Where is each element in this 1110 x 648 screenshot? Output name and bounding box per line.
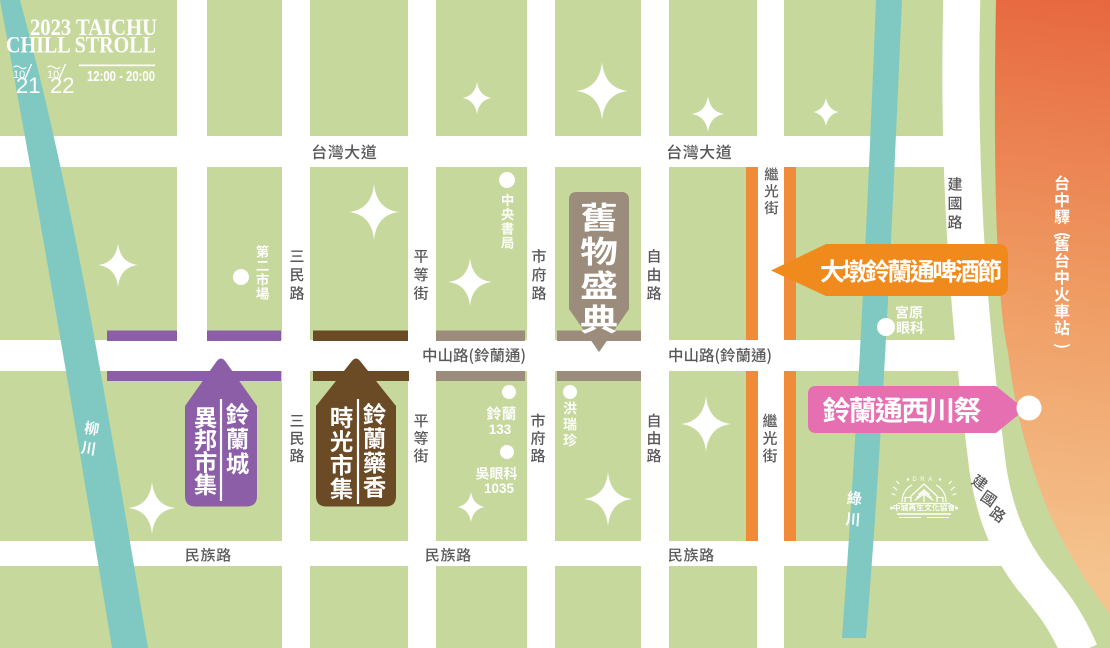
svg-text:12:00 - 20:00: 12:00 - 20:00 — [87, 69, 155, 85]
svg-text:CHILL STROLL: CHILL STROLL — [6, 33, 156, 59]
svg-text:22: 22 — [50, 73, 74, 98]
svg-text:21: 21 — [16, 73, 40, 98]
svg-text:1035: 1035 — [484, 481, 515, 496]
svg-text:DRA: DRA — [912, 477, 935, 483]
svg-text:133: 133 — [489, 422, 512, 437]
